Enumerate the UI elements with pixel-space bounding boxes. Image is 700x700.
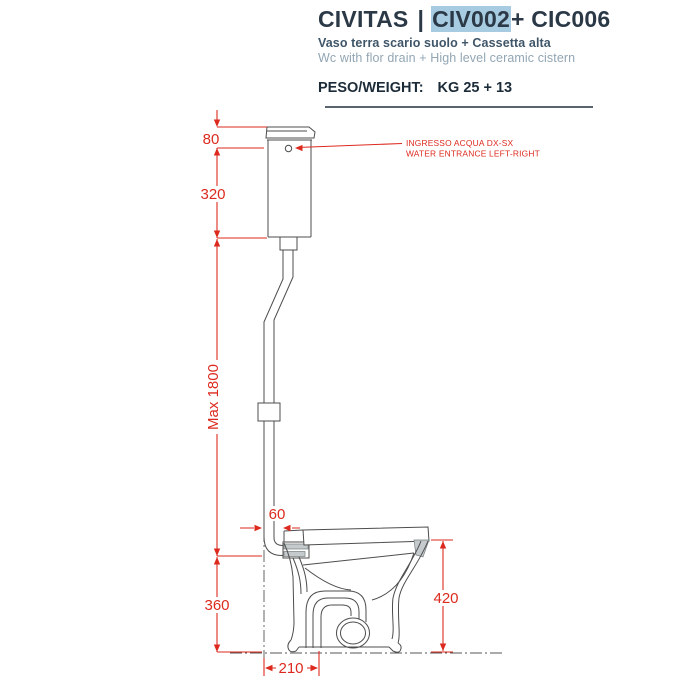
dim-label-210: 210 — [278, 660, 303, 677]
bowl-front-inner — [392, 541, 421, 639]
dimension-chain-left: 80 320 Max 1800 360 — [196, 110, 267, 652]
bowl-back-shelf — [284, 530, 303, 543]
dim-label-320: 320 — [200, 186, 225, 203]
arrow-360-top — [214, 557, 220, 565]
technical-drawing: 80 320 Max 1800 360 60 420 — [0, 0, 700, 700]
dim-max-group: Max 1800 — [205, 360, 222, 434]
arrow-80-top — [214, 120, 220, 128]
spec-sheet: CIVITAS|CIV002+ CIC006 Vaso terra scario… — [0, 0, 700, 700]
pipe-inner-line — [274, 250, 309, 546]
cistern-body — [268, 140, 311, 237]
arrow-210-left — [265, 665, 273, 671]
dim-label-60: 60 — [269, 506, 286, 523]
arrow-max-top — [214, 239, 220, 247]
annotation-line2: WATER ENTRANCE LEFT-RIGHT — [406, 149, 540, 159]
water-entrance-hole — [285, 145, 291, 151]
dimension-420: 420 — [429, 540, 463, 652]
arrow-60-right — [283, 525, 291, 531]
arrow-320-bottom — [214, 231, 220, 239]
cistern-lid — [266, 127, 315, 138]
arrow-420-bottom — [440, 644, 446, 652]
dimension-60: 60 — [240, 506, 300, 531]
arrow-210-right — [311, 665, 319, 671]
leader-line — [297, 144, 402, 148]
dim-label-80: 80 — [203, 131, 220, 148]
arrow-max-bottom — [214, 549, 220, 557]
water-entrance-annotation: INGRESSO ACQUA DX-SX WATER ENTRANCE LEFT… — [295, 138, 540, 159]
arrow-320-top — [214, 148, 220, 156]
left-foot — [288, 640, 299, 652]
seat-slab — [303, 527, 429, 545]
arrow-360-bottom — [214, 645, 220, 653]
bowl-waterline — [303, 553, 414, 565]
leader-arrow — [295, 145, 303, 151]
dimension-210: 210 — [264, 651, 319, 677]
extension-lines — [217, 127, 267, 652]
bowl-bottom-curve — [305, 568, 351, 590]
cistern — [266, 127, 315, 250]
centerlines — [230, 530, 505, 676]
cistern-outlet-spud — [280, 237, 297, 250]
toilet-bowl — [283, 527, 429, 652]
arrow-420-top — [440, 541, 446, 549]
inlet-socket-hatch-bottom — [284, 552, 305, 557]
dim-label-420: 420 — [433, 590, 458, 607]
dim-label-360: 360 — [204, 597, 229, 614]
dim-label-max-1800: Max 1800 — [205, 364, 222, 430]
back-flush-channel — [293, 557, 307, 594]
bowl-inner-wall — [372, 553, 414, 600]
right-foot — [389, 643, 401, 652]
pipe-coupling — [258, 403, 280, 421]
annotation-line1: INGRESSO ACQUA DX-SX — [406, 138, 514, 148]
arrow-60-left — [255, 525, 263, 531]
drain-outlet-inner — [341, 622, 366, 644]
